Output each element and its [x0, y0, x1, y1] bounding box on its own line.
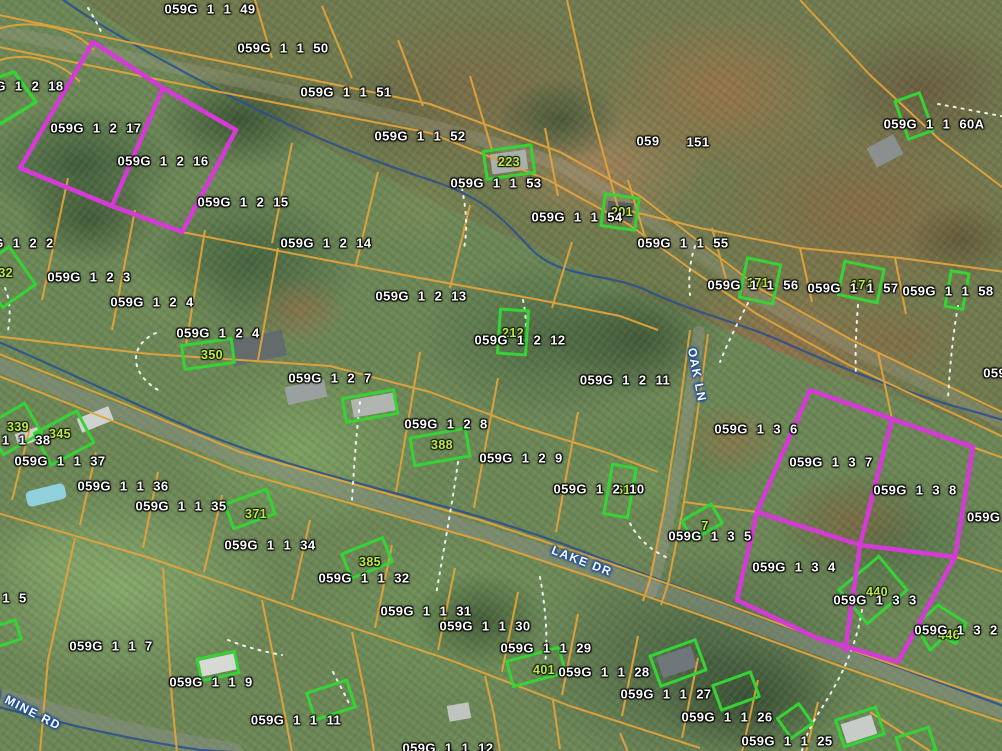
parcel-label[interactable]: 059G 1 1 50: [238, 41, 329, 56]
parcel-label[interactable]: 059G: [983, 366, 1002, 381]
parcel-label[interactable]: 059G 1 1 5: [0, 591, 27, 606]
parcel-label[interactable]: 059G 1 1 49: [165, 2, 256, 17]
address-label: 332: [0, 266, 13, 280]
parcel-label[interactable]: 059G 1 2 12: [475, 333, 566, 348]
parcel-label[interactable]: 059G 1 1 34: [225, 538, 316, 553]
parcel-label[interactable]: 059G 1 1 29: [501, 641, 592, 656]
address-label: 401: [533, 663, 555, 677]
parcel-label[interactable]: 059G 1 2 3: [47, 270, 130, 285]
parcel-label[interactable]: 059G 1 1 31: [381, 604, 472, 619]
parcel-label[interactable]: 059: [637, 134, 660, 149]
parcel-label[interactable]: 059G 1 1 26: [682, 710, 773, 725]
address-label: 223: [498, 155, 520, 169]
parcel-label[interactable]: 151: [687, 135, 710, 150]
parcel-label[interactable]: 059G 1 1 7: [69, 639, 152, 654]
parcel-label[interactable]: 059G 1 2 17: [51, 121, 142, 136]
parcel-label[interactable]: 059G 1 1 28: [559, 665, 650, 680]
parcel-label[interactable]: 059G 1 3 3: [833, 593, 916, 608]
address-label: 385: [359, 555, 381, 569]
parcel-label[interactable]: 059G 1: [967, 510, 1002, 525]
parcel-label[interactable]: 059G 1 2 8: [404, 417, 487, 432]
parcel-label[interactable]: 059G 1 2 14: [281, 236, 372, 251]
parcel-label[interactable]: 059G 1 2 15: [198, 195, 289, 210]
parcel-label[interactable]: 059G 1 3 7: [789, 455, 872, 470]
parcel-label[interactable]: 059G 1 1 54: [532, 210, 623, 225]
road-label: LAKE DR: [550, 543, 615, 579]
parcel-label[interactable]: 059G 1 1 55: [638, 236, 729, 251]
parcel-label[interactable]: 059G 1 1 9: [169, 675, 252, 690]
parcel-label[interactable]: 059G 1 2 9: [479, 451, 562, 466]
parcel-label[interactable]: 059G 1 2 10: [554, 482, 645, 497]
parcel-label[interactable]: 059G 1 1 11: [251, 713, 341, 728]
parcel-label[interactable]: 059G 1 1 25: [742, 734, 833, 749]
parcel-label[interactable]: 059G 1 2 4: [110, 295, 193, 310]
parcel-label[interactable]: 059G 1 3 2: [914, 623, 997, 638]
parcel-label[interactable]: 059G 1 2 7: [288, 371, 371, 386]
address-label: 350: [201, 348, 223, 362]
parcel-label[interactable]: 059G 1 2 18: [0, 79, 63, 94]
parcel-label[interactable]: 059G 1 1 56: [708, 278, 799, 293]
parcel-label[interactable]: 059G 1 1 38: [0, 433, 50, 448]
parcel-label[interactable]: 059G 1 2 13: [376, 289, 467, 304]
parcel-label[interactable]: 059G 1 1 53: [451, 176, 542, 191]
parcel-label[interactable]: 059G 1 2 4: [176, 326, 259, 341]
parcel-label[interactable]: 059G 1 1 51: [301, 85, 392, 100]
address-label: 345: [49, 427, 71, 441]
parcel-label[interactable]: 059G 1 1 60A: [884, 117, 985, 132]
address-label: 388: [431, 438, 453, 452]
parcel-label[interactable]: 059G 1 1 32: [319, 571, 410, 586]
parcel-label[interactable]: 059G 1 2 2: [0, 236, 54, 251]
gis-map-canvas[interactable]: 2232011711743502123323393453883713854014…: [0, 0, 1002, 751]
parcel-label[interactable]: 059G 1 3 6: [714, 422, 797, 437]
parcel-label[interactable]: 059G 1 1 58: [903, 284, 994, 299]
parcel-label[interactable]: 059G 1 3 5: [668, 529, 751, 544]
road-label: OAK LN: [685, 347, 709, 404]
parcel-label[interactable]: 059G 1 1 27: [621, 687, 712, 702]
road-label: CA MINE RD: [0, 681, 63, 732]
parcel-label[interactable]: 059G 1 1 35: [136, 499, 227, 514]
parcel-label[interactable]: 059G 1 1 57: [808, 281, 899, 296]
label-layer: 2232011711743502123323393453883713854014…: [0, 0, 1002, 751]
parcel-label[interactable]: 059G 1 2 16: [118, 154, 209, 169]
parcel-label[interactable]: 059G 1 1 52: [375, 129, 466, 144]
address-label: 371: [245, 507, 267, 521]
parcel-label[interactable]: 059G 1 3 8: [873, 483, 956, 498]
parcel-label[interactable]: 059G 1 2 11: [580, 373, 670, 388]
parcel-label[interactable]: 059G 1 1 37: [15, 454, 106, 469]
parcel-label[interactable]: 059G 1 1 36: [78, 479, 169, 494]
parcel-label[interactable]: 059G 1 3 4: [752, 560, 835, 575]
parcel-label[interactable]: 059G 1 1 12: [403, 741, 494, 751]
parcel-label[interactable]: 059G 1 1 30: [440, 619, 531, 634]
